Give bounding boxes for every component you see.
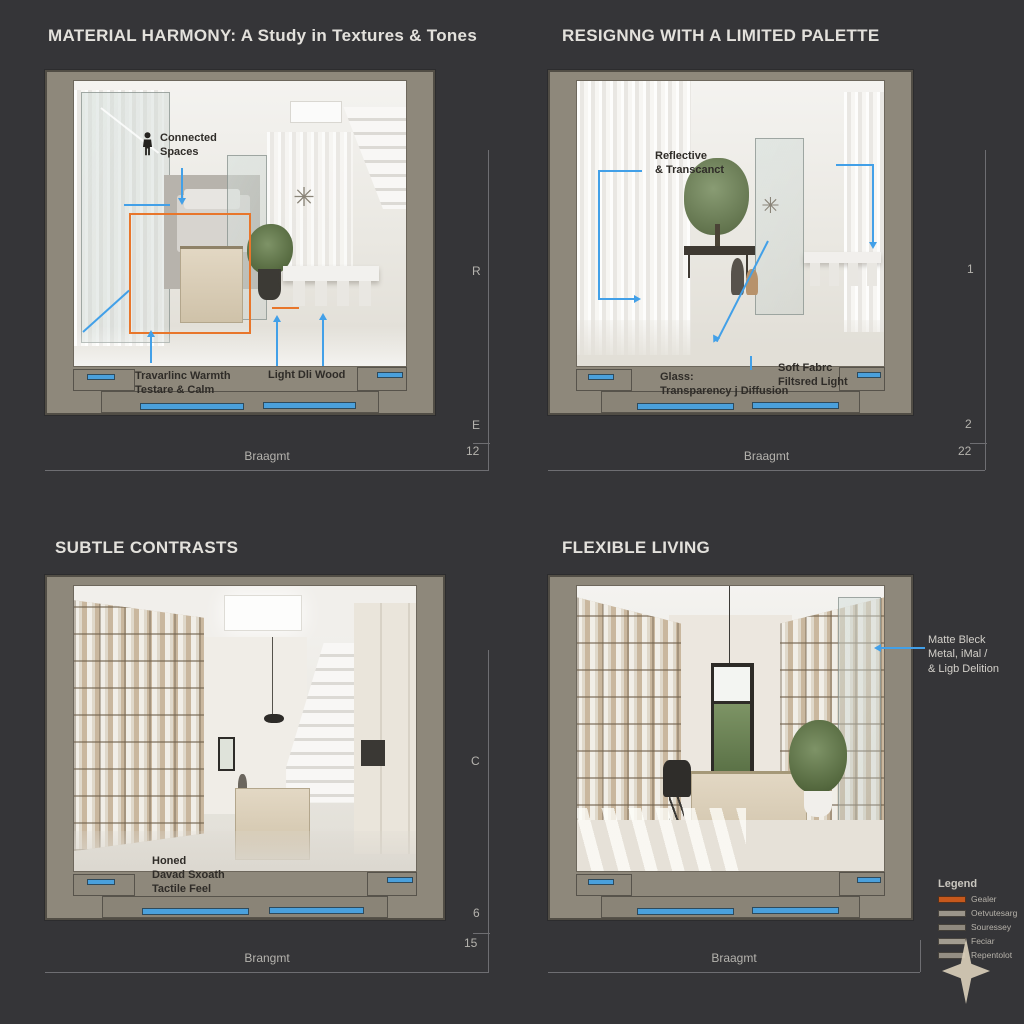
dim-value: 15: [464, 936, 477, 950]
route-left-line: [598, 170, 600, 300]
panel4-photo: [576, 585, 885, 872]
route-bottom-line: [598, 298, 634, 300]
console-table: [684, 246, 755, 255]
panel1-title: MATERIAL HARMONY: A Study in Textures & …: [48, 26, 477, 46]
dim-label: E: [472, 418, 480, 432]
skylight: [290, 101, 342, 123]
glazing-sill-right: [387, 877, 413, 883]
arrow-wood2-head: [319, 313, 327, 320]
arrow-wood2-line: [322, 320, 324, 366]
dim-bottom-label: Brangmt: [45, 951, 489, 965]
curtain-right: [844, 92, 884, 331]
cabinet-wall: [354, 603, 416, 854]
dim-label: 6: [473, 906, 480, 920]
bookshelf-left: [74, 600, 204, 851]
glass-pane-right: [838, 597, 881, 842]
dimension-end-tick: [920, 940, 921, 972]
corner-right-line: [872, 164, 874, 242]
dim-bottom-label: Braagmt: [45, 449, 489, 463]
orange-tick-line: [272, 307, 299, 309]
dimension-tick: [473, 933, 490, 934]
arrow-wood1-line: [276, 322, 278, 366]
footing-right: [839, 872, 885, 896]
footing-left: [73, 369, 135, 391]
dimension-line-vertical: [488, 150, 489, 470]
floor: [577, 320, 884, 366]
arrow-connected-head: [178, 198, 186, 205]
panel2-title: RESIGNNG WITH A LIMITED PALETTE: [562, 26, 880, 46]
dim-label: R: [472, 264, 481, 278]
legend-swatch: [938, 952, 966, 959]
callout-light-wood: Light Dli Wood: [268, 369, 345, 383]
floor: [74, 831, 416, 871]
annotation-line-horizontal: [124, 204, 170, 206]
glazing-bar-left: [142, 908, 249, 915]
glazing-sill-right: [377, 372, 403, 378]
arrow-travertine-line: [150, 337, 152, 363]
glazing-sill-right: [857, 877, 881, 883]
callout-soft-fabric: Soft Fabrc Filtsred Light: [778, 362, 848, 390]
glazing-bar-right: [752, 402, 839, 409]
dimension-tick: [970, 443, 987, 444]
callout-connected-spaces: Connected Spaces: [160, 132, 217, 160]
footing-right: [367, 872, 417, 896]
dining-table: [804, 252, 881, 263]
dimension-line-vertical: [488, 650, 489, 972]
route-top-line: [598, 170, 642, 172]
dining-chairs: [810, 263, 878, 286]
legend-swatch: [938, 910, 966, 917]
dim-label: C: [471, 754, 480, 768]
panel4-frame: [548, 575, 913, 920]
glazing-sill-left: [87, 374, 115, 380]
legend-item: Souressey: [938, 922, 1024, 932]
plant-pot: [258, 269, 281, 300]
legend-label: Feciar: [971, 936, 995, 946]
corner-arrow-head: [869, 242, 877, 249]
legend-label: Oetvutesarg: [971, 908, 1017, 918]
plant-foliage: [789, 720, 847, 794]
skylight: [224, 595, 301, 631]
callout-glass: Glass: Transparency j Diffusion: [660, 371, 788, 399]
legend-item: Feciar: [938, 936, 1024, 946]
window-top-pane: [714, 667, 750, 701]
plant-pot: [804, 791, 832, 817]
dim-bottom-label: Braagmt: [548, 449, 985, 463]
matte-arrow-line: [880, 647, 925, 649]
arrow-wood1-head: [273, 315, 281, 322]
chandelier-icon: ✳: [293, 184, 315, 210]
oven-appliance: [361, 740, 385, 766]
glass-partition: [755, 138, 804, 315]
legend-item: Oetvutesarg: [938, 908, 1024, 918]
corner-top-line: [836, 164, 874, 166]
arrow-travertine-head: [147, 330, 155, 337]
glazing-bar-right: [752, 907, 839, 914]
dimension-line-bottom: [45, 972, 489, 973]
route-arrow-head: [634, 295, 641, 303]
legend-item: Gealer: [938, 894, 1024, 904]
dimension-line-vertical: [985, 150, 986, 470]
focus-rectangle-orange: [129, 213, 251, 334]
legend-title: Legend: [938, 878, 1024, 890]
panel4-title: FLEXIBLE LIVING: [562, 538, 710, 558]
panel3-frame: [45, 575, 445, 920]
glazing-sill-left: [87, 879, 115, 885]
panel2-frame: ✳: [548, 70, 913, 415]
glazing-bar-left: [637, 908, 734, 915]
glazing-sill-left: [588, 879, 614, 885]
legend-swatch: [938, 938, 966, 945]
glazing-bar-right: [269, 907, 364, 914]
callout-matte-black: Matte Bleck Metal, iMal / & Ligb Delitio…: [928, 633, 999, 676]
footing-left: [73, 874, 135, 896]
legend-item: Repentolot: [938, 950, 1024, 960]
person-icon: [140, 132, 155, 156]
dim-label: 2: [965, 417, 972, 431]
glass-tick-line: [750, 356, 752, 370]
legend: Legend Gealer Oetvutesarg Souressey Feci…: [938, 878, 1024, 960]
chandelier-icon: ✳: [761, 195, 779, 217]
dimension-line-bottom: [548, 470, 985, 471]
sunlight-streaks: [577, 808, 746, 871]
dining-table: [283, 266, 379, 280]
matte-arrow-head: [874, 644, 881, 652]
glazing-bar-right: [263, 402, 356, 409]
footing-left: [576, 874, 632, 896]
dim-bottom-label: Braagmt: [548, 951, 920, 965]
legend-label: Gealer: [971, 894, 997, 904]
pendant-cord: [272, 637, 273, 714]
panel3-photo: [73, 585, 417, 872]
arrow-connected-line: [181, 168, 183, 198]
dimension-line-bottom: [548, 972, 920, 973]
callout-reflective: Reflective & Transcanct: [655, 150, 724, 178]
glazing-bar-left: [637, 403, 734, 410]
panel3-title: SUBTLE CONTRASTS: [55, 538, 238, 558]
moodboard: MATERIAL HARMONY: A Study in Textures & …: [0, 0, 1024, 1024]
callout-travertine: Travarlinc Warmth Testare & Calm: [135, 370, 231, 398]
legend-swatch: [938, 896, 966, 903]
panel2-photo: ✳: [576, 80, 885, 367]
glazing-sill-left: [588, 374, 614, 380]
office-chair: [663, 760, 691, 797]
dim-label: 1: [967, 262, 974, 276]
footing-left: [576, 369, 632, 391]
legend-label: Souressey: [971, 922, 1011, 932]
legend-swatch: [938, 924, 966, 931]
pendant-shade: [264, 714, 285, 723]
glazing-bar-left: [140, 403, 244, 410]
back-window: [218, 737, 235, 771]
dimension-line-bottom: [45, 470, 489, 471]
legend-label: Repentolot: [971, 950, 1012, 960]
glazing-sill-right: [857, 372, 881, 378]
callout-honed: Honed Davad Sxoath Tactile Feel: [152, 855, 225, 896]
footing-right: [357, 367, 407, 391]
curtain-left: [577, 81, 691, 355]
dining-chairs: [293, 281, 373, 307]
